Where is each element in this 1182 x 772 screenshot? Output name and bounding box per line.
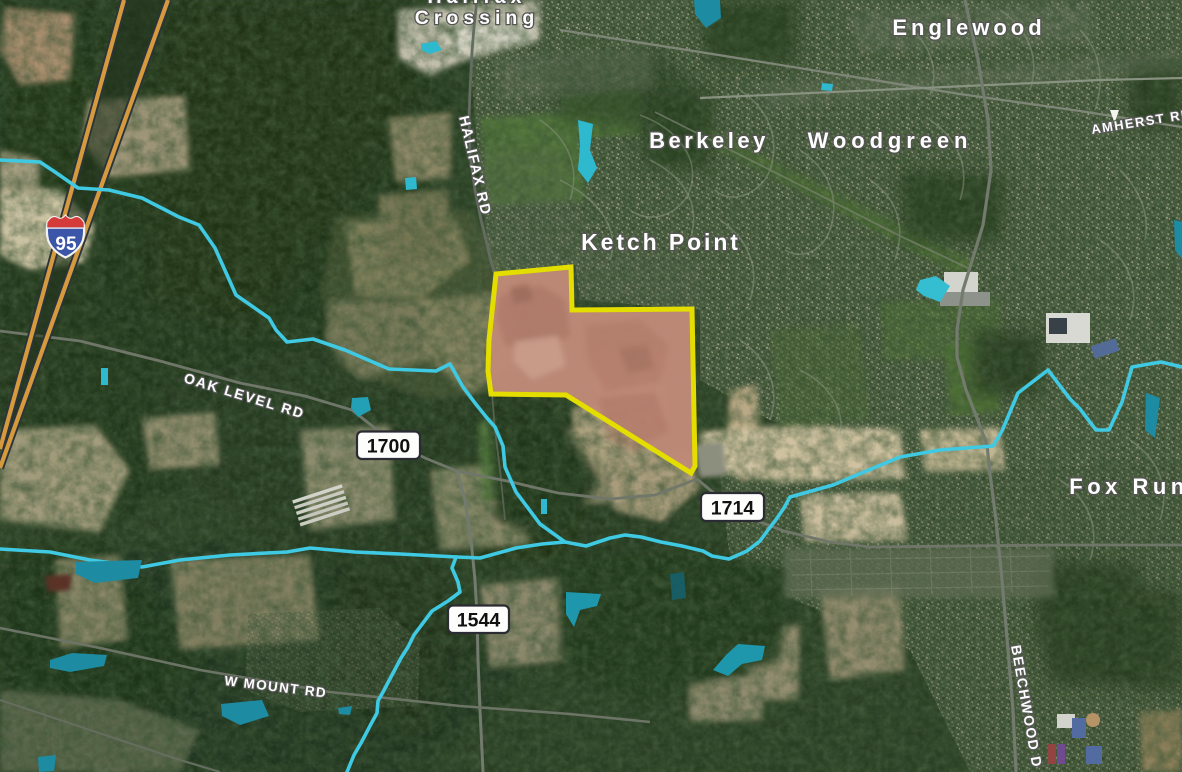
svg-text:Woodgreen: Woodgreen (808, 128, 973, 153)
svg-text:Berkeley: Berkeley (649, 128, 769, 153)
svg-text:Fox Run: Fox Run (1069, 474, 1182, 499)
svg-text:1544: 1544 (457, 610, 501, 632)
svg-text:Crossing: Crossing (415, 7, 540, 29)
svg-text:Halifax: Halifax (428, 0, 527, 8)
svg-text:1714: 1714 (711, 498, 755, 520)
svg-text:95: 95 (55, 234, 77, 255)
svg-text:1700: 1700 (367, 436, 411, 458)
svg-text:Ketch Point: Ketch Point (581, 229, 741, 255)
svg-text:Englewood: Englewood (892, 15, 1045, 40)
